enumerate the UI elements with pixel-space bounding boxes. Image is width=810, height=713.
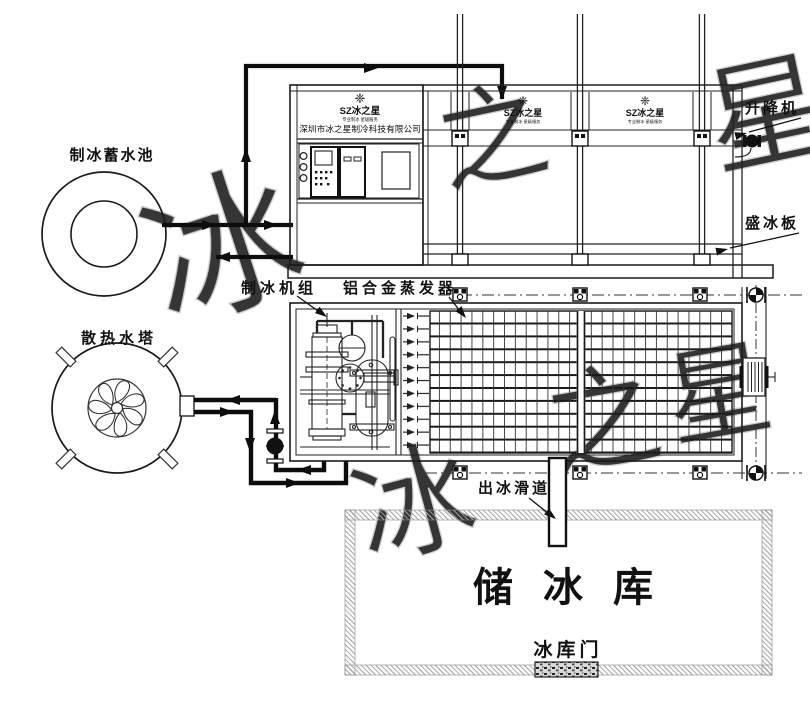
watermark-char: 之 xyxy=(426,67,559,210)
keypad-dots xyxy=(315,171,332,185)
side-panel xyxy=(382,152,410,189)
ice-slide: 出冰滑道 xyxy=(478,458,566,546)
cold-room-door xyxy=(535,662,598,677)
logo-mark-icon: ❈ xyxy=(518,94,528,108)
logo-text: SZ冰之星 xyxy=(626,107,665,118)
logo-tagline: 专业制冰 星级服务 xyxy=(342,116,378,123)
pulley-icon xyxy=(693,288,707,301)
refrigeration-unit xyxy=(300,313,398,450)
tower-mount-tabs xyxy=(56,347,178,469)
control-panel xyxy=(299,144,419,198)
indicator-light xyxy=(300,153,307,160)
ice-unit-callout: 制冰机组 xyxy=(241,279,329,320)
evaporator-fins xyxy=(403,311,429,453)
ice-water-pool: 制冰蓄水池 xyxy=(42,146,166,296)
logo-mark-icon: ❈ xyxy=(640,94,650,108)
plan-view: 制冰机组 铝合金蒸发器 xyxy=(241,279,802,483)
lift-label: 升降机 xyxy=(745,99,799,117)
logo-tagline: 专业制冰 星级服务 xyxy=(628,118,663,125)
machine-elevation: ❈ SZ冰之星 专业制冰 星级服务 深圳市冰之星制冷科技有限公司 xyxy=(288,14,801,278)
panel-logo-right: ❈ SZ冰之星 专业制冰 星级服务 xyxy=(626,94,665,125)
rod-sliders xyxy=(452,131,710,265)
evaporator-grid xyxy=(403,311,732,453)
tower-nozzle xyxy=(180,396,194,416)
cooling-tower: 散热水塔 xyxy=(52,329,182,473)
switch-door xyxy=(340,147,365,197)
drive-motor xyxy=(740,287,776,479)
ice-plant-diagram: 冰 之 星 冰 之 星 制冰蓄水池 xyxy=(0,0,810,713)
storage-label: 储冰库 xyxy=(473,566,683,610)
logo-mark-icon: ❈ xyxy=(355,91,366,106)
shaft-end-icon xyxy=(747,287,765,303)
tower-label: 散热水塔 xyxy=(81,329,157,347)
logo-text: SZ冰之星 xyxy=(340,105,381,117)
evaporator-label: 铝合金蒸发器 xyxy=(343,279,457,297)
pulley-icon xyxy=(573,466,587,479)
door-label: 冰库门 xyxy=(533,638,602,661)
hmi-screen xyxy=(315,151,332,165)
pulley-icon xyxy=(573,288,587,301)
pulley-icon xyxy=(693,466,707,479)
ice-plate-callout: 盛冰板 xyxy=(715,214,799,256)
company-name: 深圳市冰之星制冷科技有限公司 xyxy=(299,123,421,134)
logo-text: SZ冰之星 xyxy=(504,107,543,118)
indicator-light xyxy=(300,175,307,182)
pulley-icon xyxy=(453,466,467,479)
tower-fan-icon xyxy=(86,378,146,437)
diagram-canvas: 冰 之 星 冰 之 星 制冰蓄水池 xyxy=(0,0,810,713)
switch xyxy=(344,157,351,161)
base-plate xyxy=(288,265,773,278)
lift-callout: 升降机 xyxy=(734,99,801,140)
ice-plate-label: 盛冰板 xyxy=(745,214,799,232)
indicator-light xyxy=(300,164,307,171)
panel-logo-left: ❈ SZ冰之星 专业制冰 星级服务 xyxy=(504,94,543,125)
lifting-frame: ❈ SZ冰之星 专业制冰 星级服务 ❈ SZ冰之星 专业制冰 星级服务 xyxy=(423,14,761,278)
brand-block: ❈ SZ冰之星 专业制冰 星级服务 深圳市冰之星制冷科技有限公司 xyxy=(299,91,421,134)
logo-tagline: 专业制冰 星级服务 xyxy=(506,118,541,125)
ice-unit-label: 制冰机组 xyxy=(241,279,317,297)
pool-label: 制冰蓄水池 xyxy=(69,146,154,164)
switch xyxy=(354,157,361,161)
watermark-char: 冰 xyxy=(123,143,324,355)
shaft-end-icon xyxy=(747,465,765,481)
slide-label: 出冰滑道 xyxy=(478,479,550,497)
